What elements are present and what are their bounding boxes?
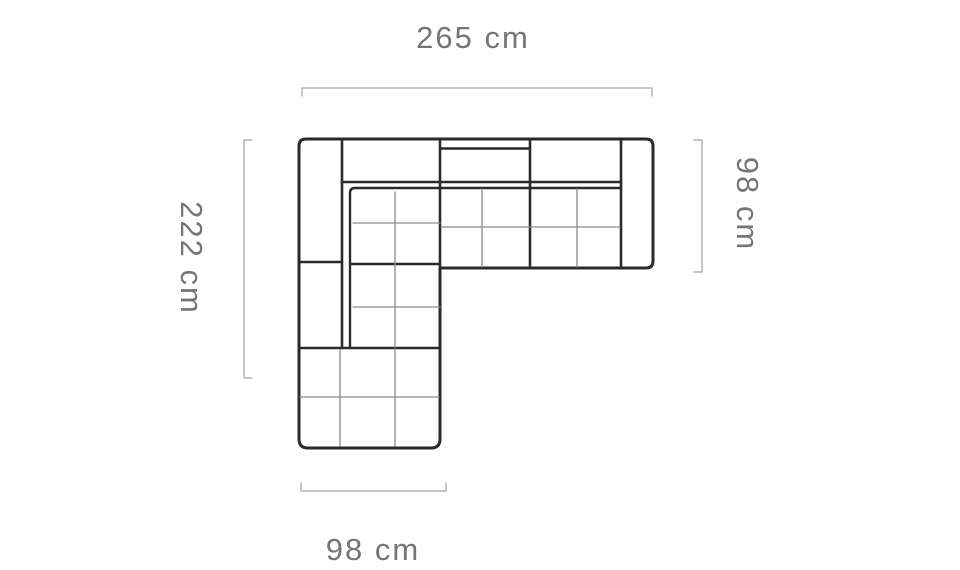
corner-cushion-seams	[353, 192, 440, 348]
dim-label-bottom: 98 cm	[326, 532, 420, 567]
sofa-outline	[299, 139, 653, 448]
dim-line-top	[302, 88, 652, 96]
dim-line-bottom	[301, 483, 446, 491]
dim-label-right: 98 cm	[730, 157, 765, 251]
dimension-labels: 265 cm 222 cm 98 cm 98 cm	[174, 20, 765, 567]
dim-line-left	[244, 140, 252, 378]
dim-label-top: 265 cm	[416, 20, 530, 55]
dim-label-left: 222 cm	[174, 201, 209, 315]
sofa-body-lines	[299, 139, 653, 448]
dim-line-right	[694, 140, 702, 272]
sofa-dimension-diagram-page: 265 cm 222 cm 98 cm 98 cm	[0, 0, 960, 570]
sofa-dimension-diagram: 265 cm 222 cm 98 cm 98 cm	[0, 0, 960, 570]
cushion-seam-lines	[300, 189, 620, 446]
ottoman-cushion-seams	[300, 350, 439, 446]
